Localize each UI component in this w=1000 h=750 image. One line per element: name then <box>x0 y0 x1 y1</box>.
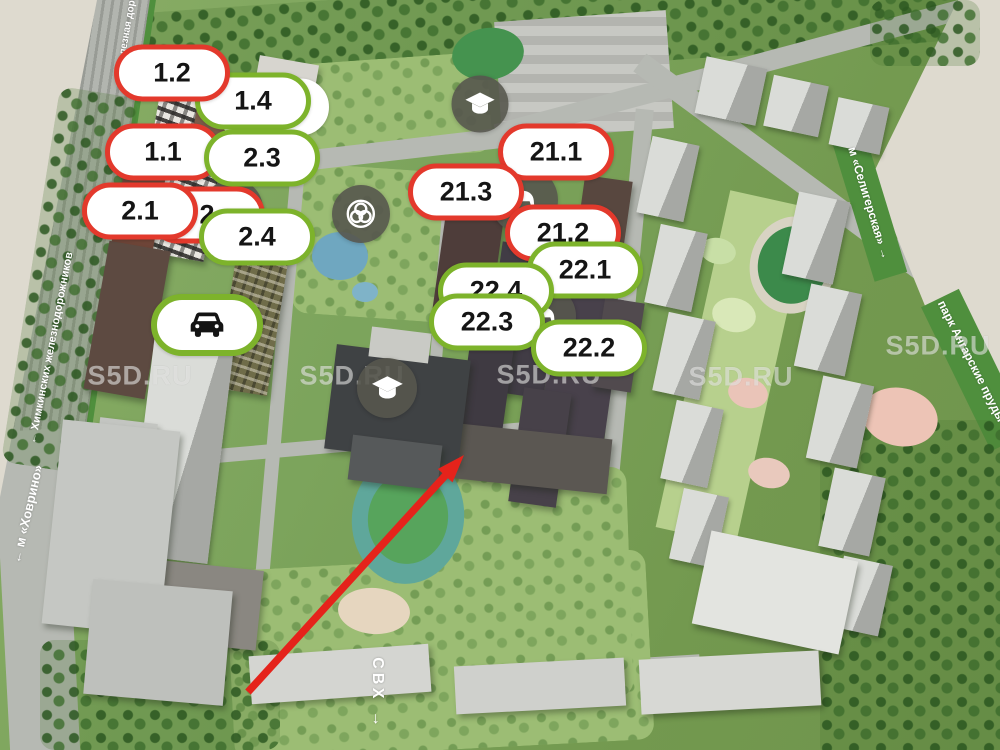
terrain-shape <box>870 0 980 66</box>
car-icon <box>185 303 229 347</box>
parking-badge[interactable] <box>151 294 263 356</box>
terrain-shape <box>639 650 822 714</box>
building-marker-2.3[interactable]: 2.3 <box>204 130 320 187</box>
graduation-cap-icon <box>370 371 405 406</box>
building-marker-22.3[interactable]: 22.3 <box>429 294 545 351</box>
building-marker-1.2[interactable]: 1.2 <box>114 45 230 102</box>
terrain-shape <box>763 75 829 138</box>
watermark-text: S5D.RU <box>688 362 793 393</box>
brand-badge[interactable] <box>332 185 390 243</box>
building-marker-22.2[interactable]: 22.2 <box>531 320 647 377</box>
building-marker-2.1[interactable]: 2.1 <box>82 183 198 240</box>
building-marker-label: 2.3 <box>243 143 281 174</box>
terrain-shape <box>454 658 626 715</box>
rose-logo-icon <box>344 197 378 231</box>
building-marker-label: 1.2 <box>153 58 191 89</box>
building-marker-label: 21.1 <box>530 137 583 168</box>
building-marker-label: 21.3 <box>440 177 493 208</box>
building-marker-2.4[interactable]: 2.4 <box>199 209 315 266</box>
watermark-text: S5D.RU <box>885 331 990 362</box>
building-marker-label: 2.1 <box>121 196 159 227</box>
building-marker-label: 22.1 <box>559 255 612 286</box>
school-badge[interactable] <box>357 358 417 418</box>
graduation-cap-icon <box>463 87 496 120</box>
terrain-shape <box>695 56 768 126</box>
building-marker-label: 22.3 <box>461 307 514 338</box>
street-label-svh: СВХ → <box>368 657 386 731</box>
masterplan-canvas: железная дорога← Химкинских железнодорож… <box>0 0 1000 750</box>
building-marker-label: 22.2 <box>563 333 616 364</box>
terrain-shape <box>352 282 378 302</box>
building-marker-label: 2.4 <box>238 222 276 253</box>
building-marker-label: 1.4 <box>234 86 272 117</box>
building-marker-21.3[interactable]: 21.3 <box>408 164 524 221</box>
watermark-text: S5D.RU <box>87 361 192 392</box>
terrain-shape <box>83 579 232 706</box>
school-badge[interactable] <box>452 76 509 133</box>
building-marker-label: 1.1 <box>144 137 182 168</box>
